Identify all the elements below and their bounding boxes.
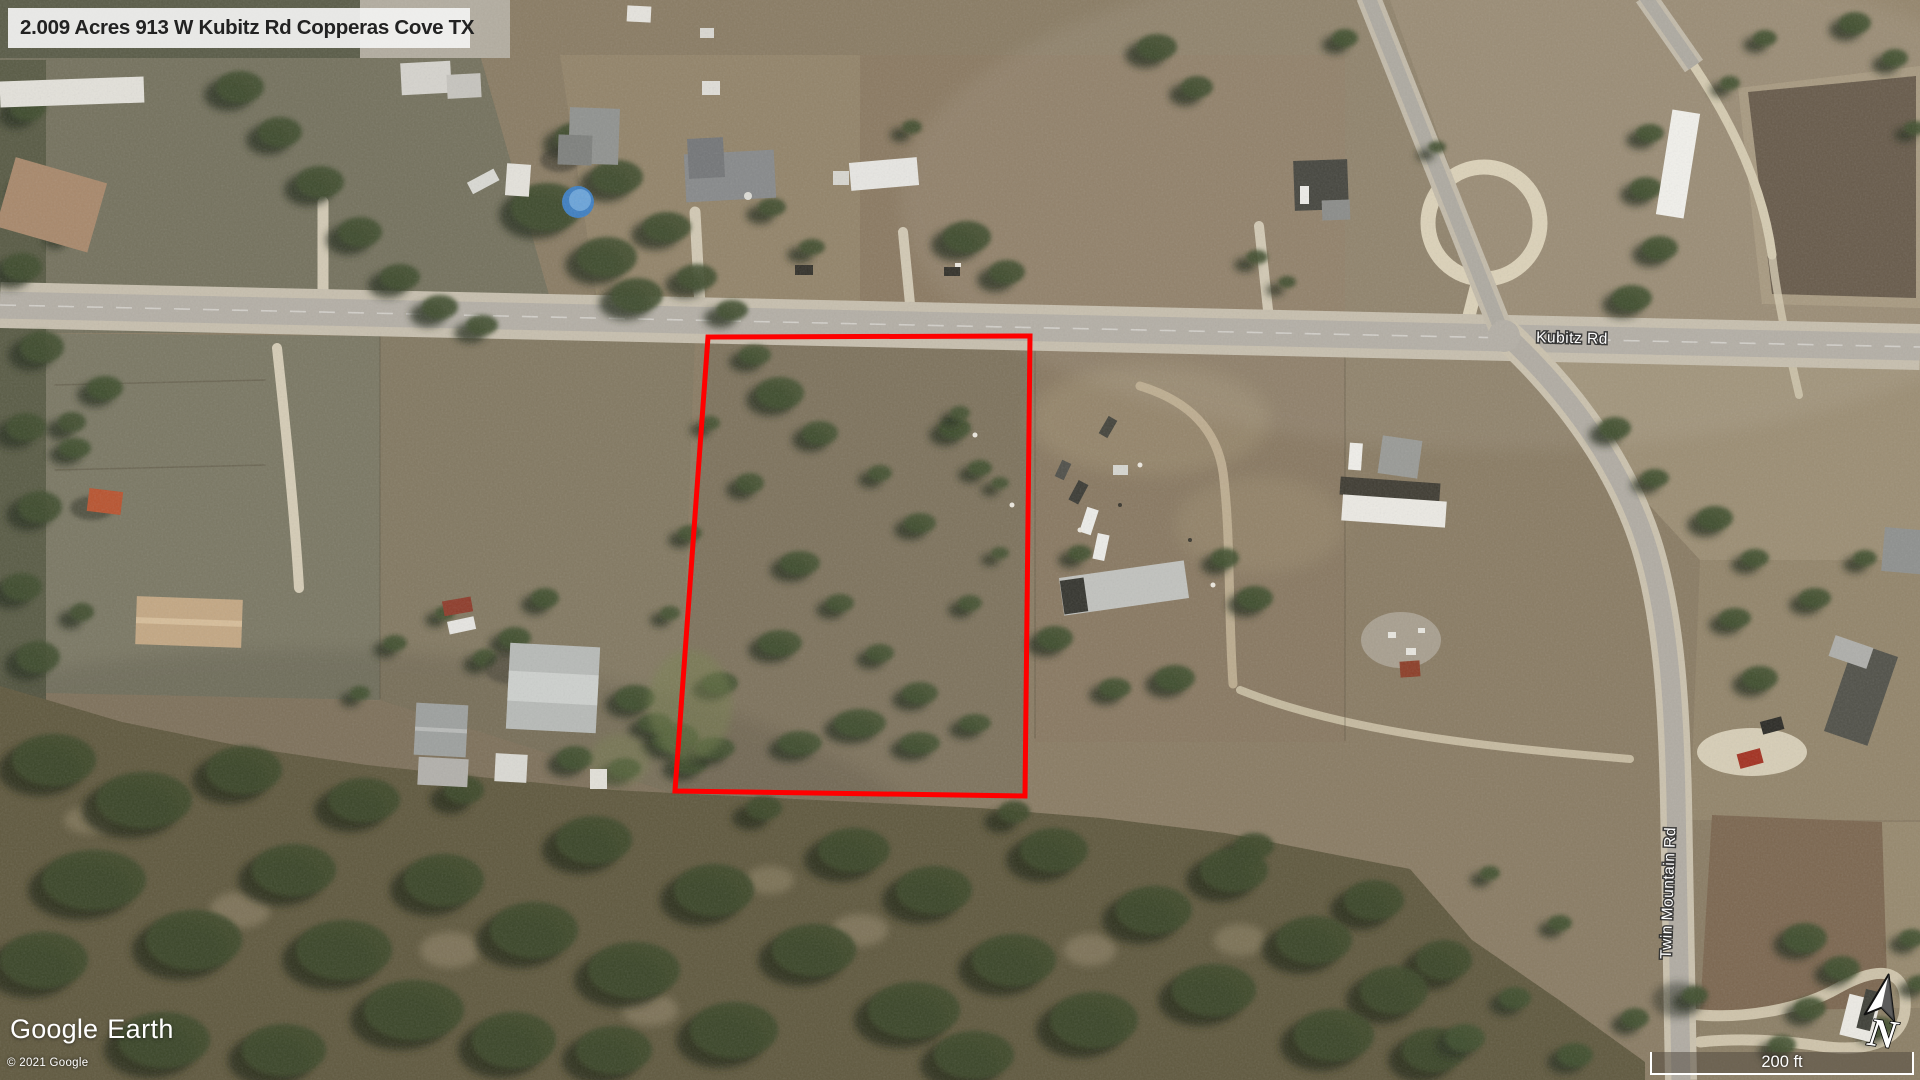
copyright-text: © 2021 Google bbox=[7, 1057, 88, 1069]
logo-google-text: Google bbox=[10, 1014, 98, 1044]
road-label-kubitz: Kubitz Rd bbox=[1536, 329, 1608, 348]
map-title-overlay: 2.009 Acres 913 W Kubitz Rd Copperas Cov… bbox=[8, 8, 470, 48]
photo-grain-overlay bbox=[0, 0, 1920, 1080]
scale-label: 200 ft bbox=[1761, 1053, 1802, 1072]
map-viewport[interactable]: Kubitz Rd Twin Mountain Rd N 2.009 Acres… bbox=[0, 0, 1920, 1080]
scale-bar: 200 ft bbox=[1650, 1052, 1914, 1075]
google-earth-logo: GoogleEarth bbox=[10, 1014, 174, 1045]
logo-earth-text: Earth bbox=[107, 1014, 174, 1044]
satellite-imagery[interactable]: Kubitz Rd Twin Mountain Rd N bbox=[0, 0, 1920, 1080]
map-title-text: 2.009 Acres 913 W Kubitz Rd Copperas Cov… bbox=[20, 16, 474, 40]
